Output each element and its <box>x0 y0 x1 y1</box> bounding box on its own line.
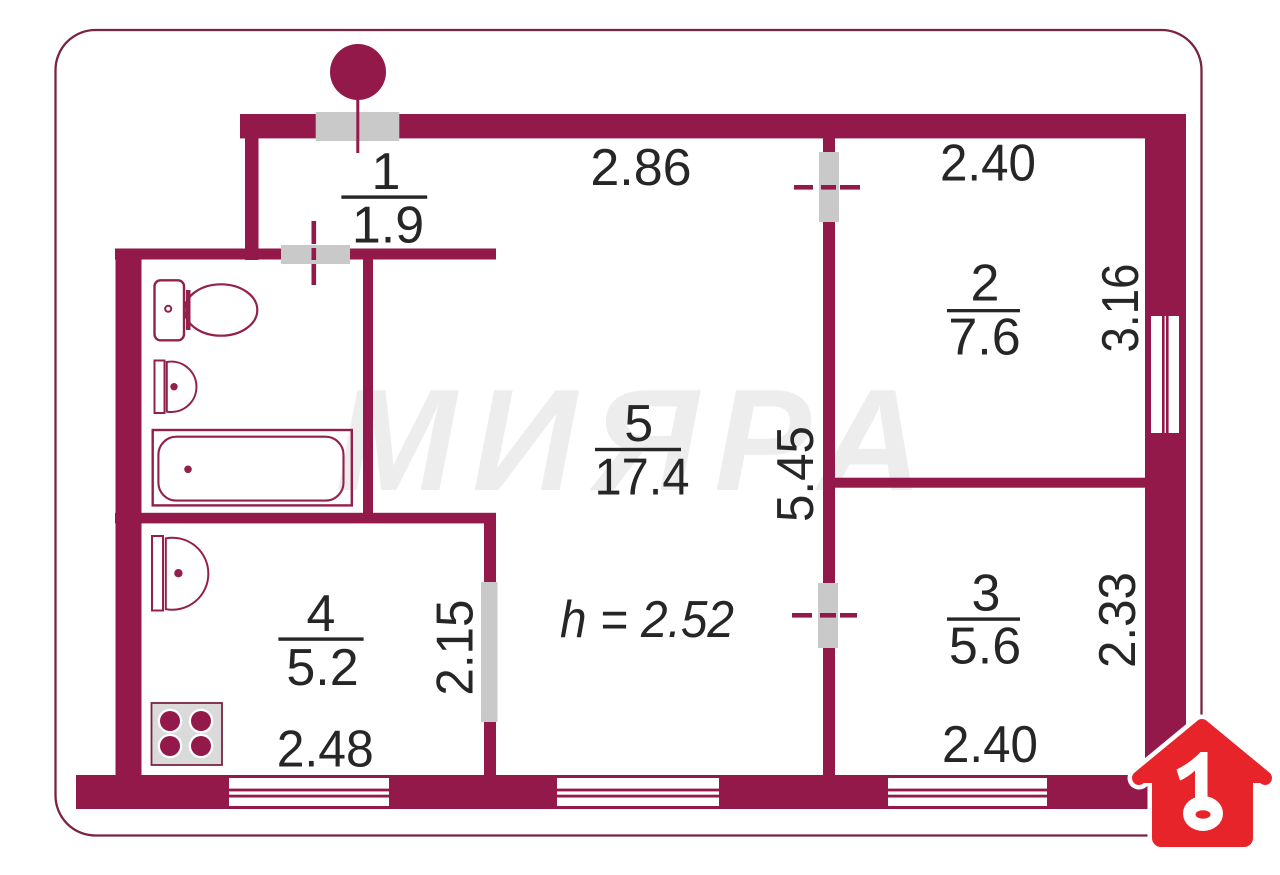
svg-text:1: 1 <box>372 143 401 201</box>
svg-text:2.33: 2.33 <box>1089 572 1147 668</box>
svg-text:5.45: 5.45 <box>767 426 825 522</box>
svg-text:5: 5 <box>624 395 653 453</box>
svg-text:3.16: 3.16 <box>1092 264 1150 353</box>
svg-text:2.48: 2.48 <box>277 721 374 779</box>
svg-text:1.9: 1.9 <box>352 197 424 255</box>
svg-text:2.15: 2.15 <box>427 600 485 696</box>
svg-text:7.6: 7.6 <box>948 309 1020 367</box>
svg-text:4: 4 <box>307 585 336 643</box>
svg-text:2: 2 <box>971 255 1000 313</box>
svg-text:3: 3 <box>972 565 1001 623</box>
svg-text:h = 2.52: h = 2.52 <box>560 591 734 649</box>
svg-text:17.4: 17.4 <box>595 449 690 507</box>
svg-text:5.6: 5.6 <box>949 618 1021 676</box>
svg-text:2.86: 2.86 <box>590 139 691 197</box>
svg-text:5.2: 5.2 <box>286 639 358 697</box>
svg-text:2.40: 2.40 <box>942 716 1038 774</box>
svg-text:2.40: 2.40 <box>940 135 1036 193</box>
